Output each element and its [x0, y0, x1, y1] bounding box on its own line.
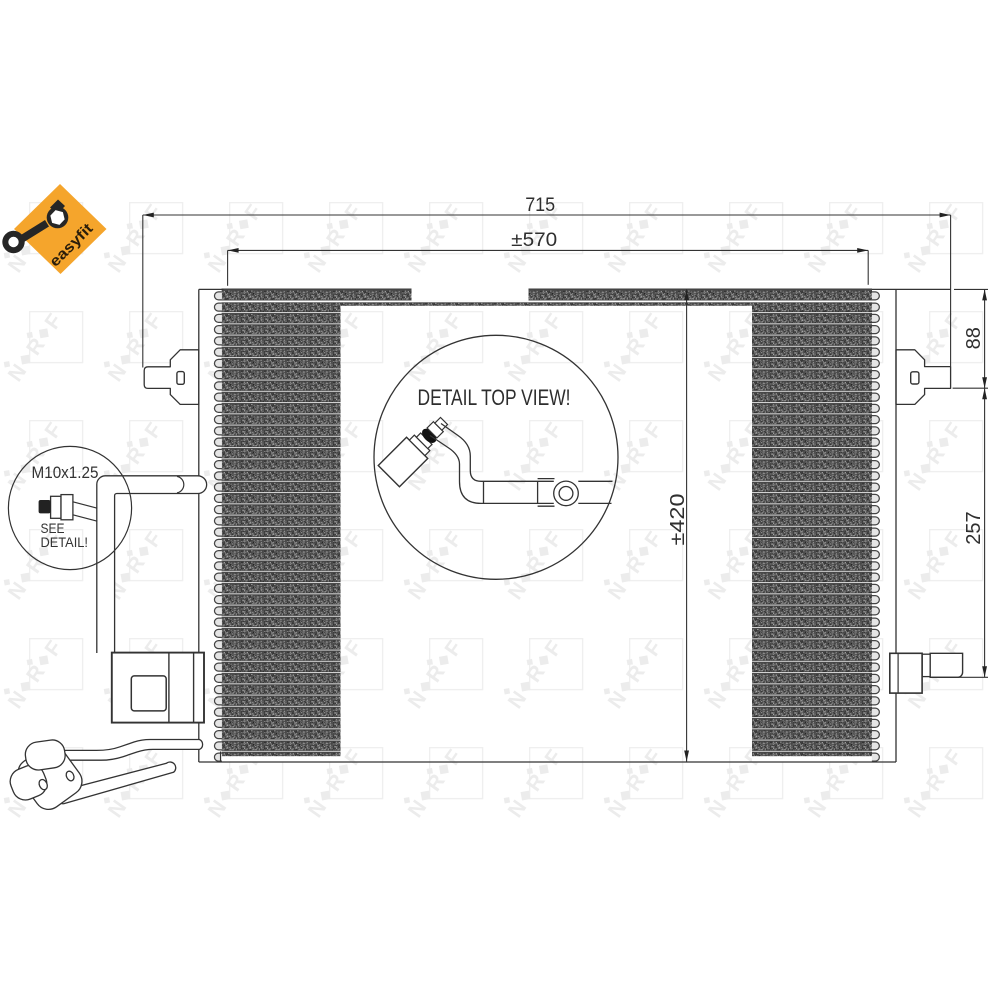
svg-text:±570: ±570 [511, 229, 557, 251]
svg-text:715: 715 [525, 194, 555, 216]
svg-text:M10x1.25: M10x1.25 [32, 463, 99, 482]
svg-text:DETAIL TOP VIEW!: DETAIL TOP VIEW! [418, 385, 571, 410]
svg-text:DETAIL!: DETAIL! [41, 534, 89, 550]
svg-text:88: 88 [963, 327, 985, 349]
svg-text:257: 257 [963, 511, 985, 544]
svg-text:±420: ±420 [667, 494, 689, 546]
